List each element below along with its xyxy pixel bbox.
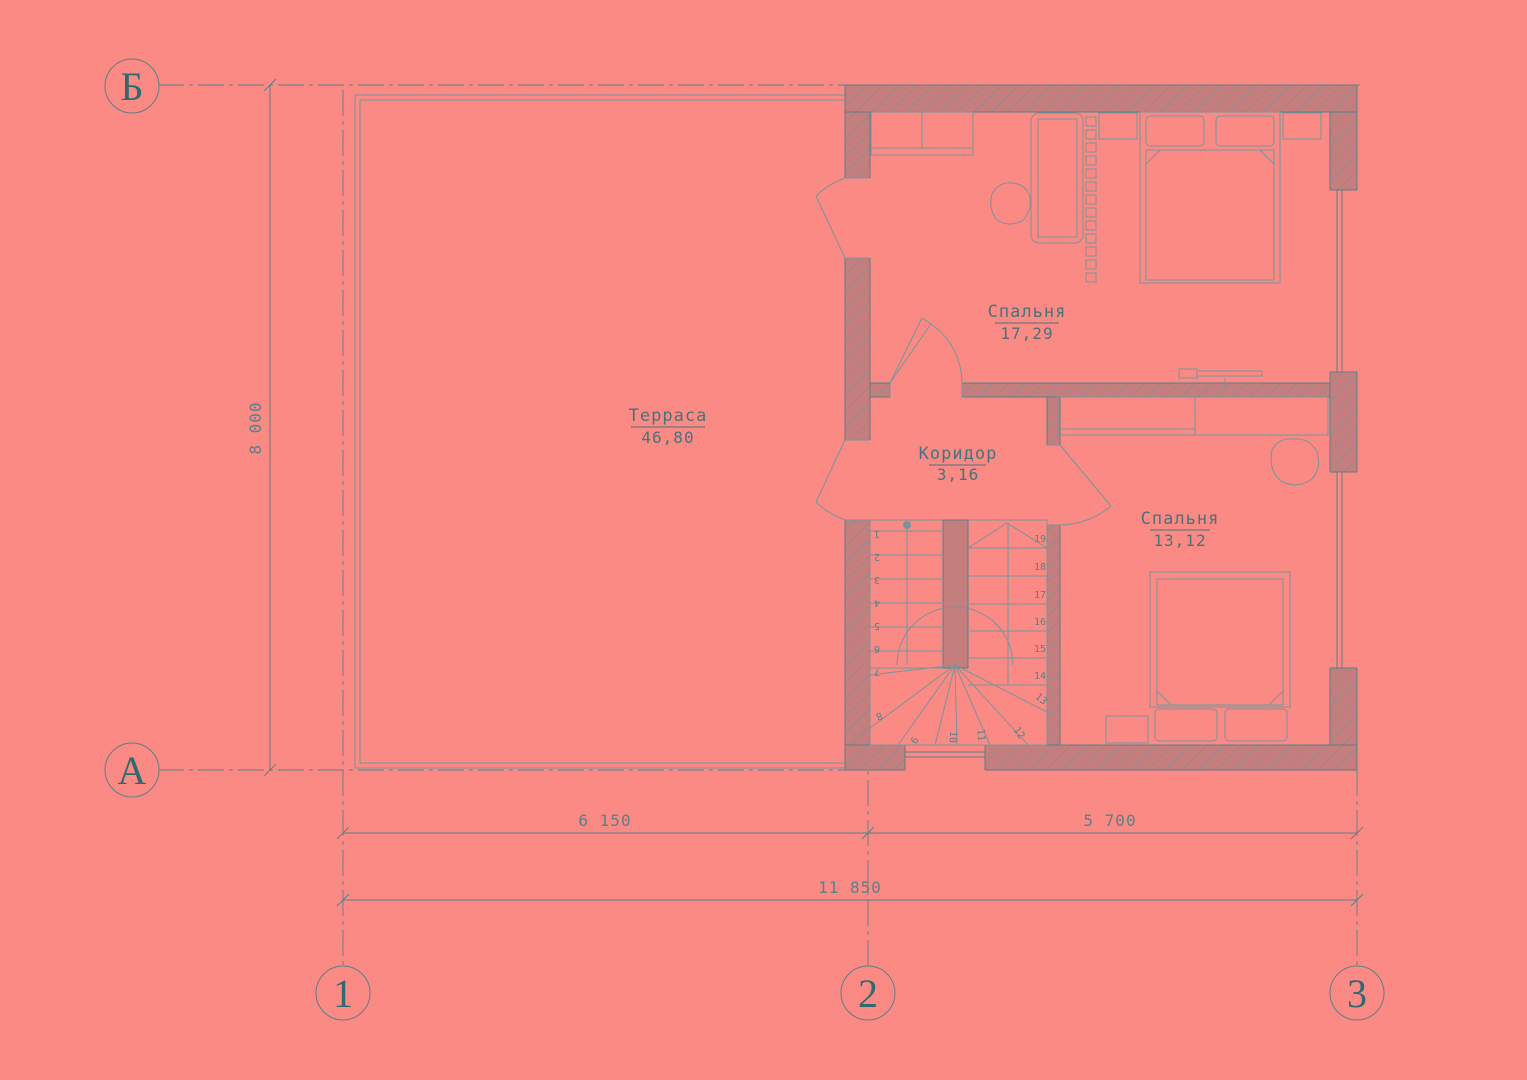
dim-horizontal-left: 6 150 [578,811,631,830]
tread-number: 19 [1034,534,1046,545]
wall-openings [844,178,1358,771]
tread-number: 9 [907,734,919,745]
stair-right-flight [968,523,1047,685]
dimension-texts: 8 000 6 150 5 700 11 850 [246,401,1137,897]
wardrobe [871,112,973,155]
tread-number: 18 [1034,562,1046,573]
wall-partition-h-right [962,383,1330,397]
tread-number: 12 [1011,725,1027,741]
floor-plan-page: 8 000 6 150 5 700 11 850 [0,0,1527,1080]
staircase: 1 2 3 4 5 6 7 8 9 10 11 12 13 14 15 16 1… [870,520,1049,745]
axis-marker-col-3: 3 [1330,966,1384,1020]
axis-marker-row-a: А [105,743,159,797]
axis-label: 1 [333,971,353,1016]
tread-number: 6 [874,643,880,654]
tread-number: 11 [974,729,986,742]
room-area: 13,12 [1153,531,1206,550]
wardrobe [1058,397,1328,435]
wall-right-lower [1330,668,1357,745]
wall-right-middle [1330,372,1357,472]
axis-marker-col-1: 1 [316,966,370,1020]
ladder [1086,117,1096,282]
room-name: Спальня [988,302,1067,322]
axis-marker-row-b: Б [105,59,159,113]
nightstand-left [1099,113,1137,139]
axis-label: 3 [1347,971,1367,1016]
floor-plan-svg: 8 000 6 150 5 700 11 850 [0,0,1527,1080]
dimension-lines [264,79,1363,906]
tread-number: 10 [946,730,958,743]
pillow [1146,116,1204,146]
tread-number: 7 [874,666,880,677]
chair [991,183,1031,224]
tread-number: 8 [874,709,884,722]
wall-right-upper [1330,112,1357,190]
terrace-outline [355,95,845,768]
pillow [1216,116,1274,146]
nightstand [1106,716,1148,743]
desk [1031,113,1083,243]
tread-number: 14 [1034,671,1046,682]
pillow [1225,709,1287,741]
room-name: Спальня [1141,509,1220,529]
axis-label: 2 [858,971,878,1016]
tread-number: 5 [874,620,880,631]
room-name: Коридор [919,444,998,464]
wall-middle-lower [845,520,870,745]
room-label-terrace: Терраса 46,80 [629,406,708,447]
nightstand-right [1283,113,1321,139]
dim-horizontal-total: 11 850 [818,878,882,897]
room-area: 46,80 [641,428,694,447]
axis-marker-col-2: 2 [841,966,895,1020]
pillow [1155,709,1217,741]
wall-middle-upper [845,112,870,178]
room-label-corridor: Коридор 3,16 [919,444,998,484]
room-label-bedroom1: Спальня 17,29 [988,302,1067,343]
tread-number: 3 [874,574,880,585]
bed [1150,572,1290,741]
stair-handrail-post [903,521,911,529]
wall-partition-v-lower [1047,525,1060,745]
wall-middle-center [845,258,870,440]
dim-vertical-total: 8 000 [246,401,265,454]
tread-number: 13 [1033,691,1049,707]
bed [1140,112,1280,283]
dim-horizontal-right: 5 700 [1083,811,1136,830]
tread-number: 2 [874,551,880,562]
room-name: Терраса [629,406,708,426]
wall-bottom-left [845,745,905,770]
room-area: 3,16 [937,465,980,484]
axis-label: Б [121,64,144,109]
wall-top [845,85,1357,112]
tread-number: 16 [1034,617,1046,628]
wall-partition-h-left [870,383,890,397]
room-labels: Терраса 46,80 Спальня 17,29 Коридор 3,16… [629,302,1220,550]
stair-spine [943,520,968,668]
furniture-bedroom2 [1058,397,1328,743]
tread-number: 15 [1034,644,1046,655]
tread-number: 1 [874,528,880,539]
axis-label: А [118,748,147,793]
room-label-bedroom2: Спальня 13,12 [1141,509,1220,550]
tread-number: 4 [874,597,880,608]
wall-bottom-right [985,745,1357,770]
room-area: 17,29 [1000,324,1053,343]
tread-number: 17 [1034,590,1046,601]
furniture-bedroom1 [871,112,1321,390]
plant [1271,439,1319,485]
